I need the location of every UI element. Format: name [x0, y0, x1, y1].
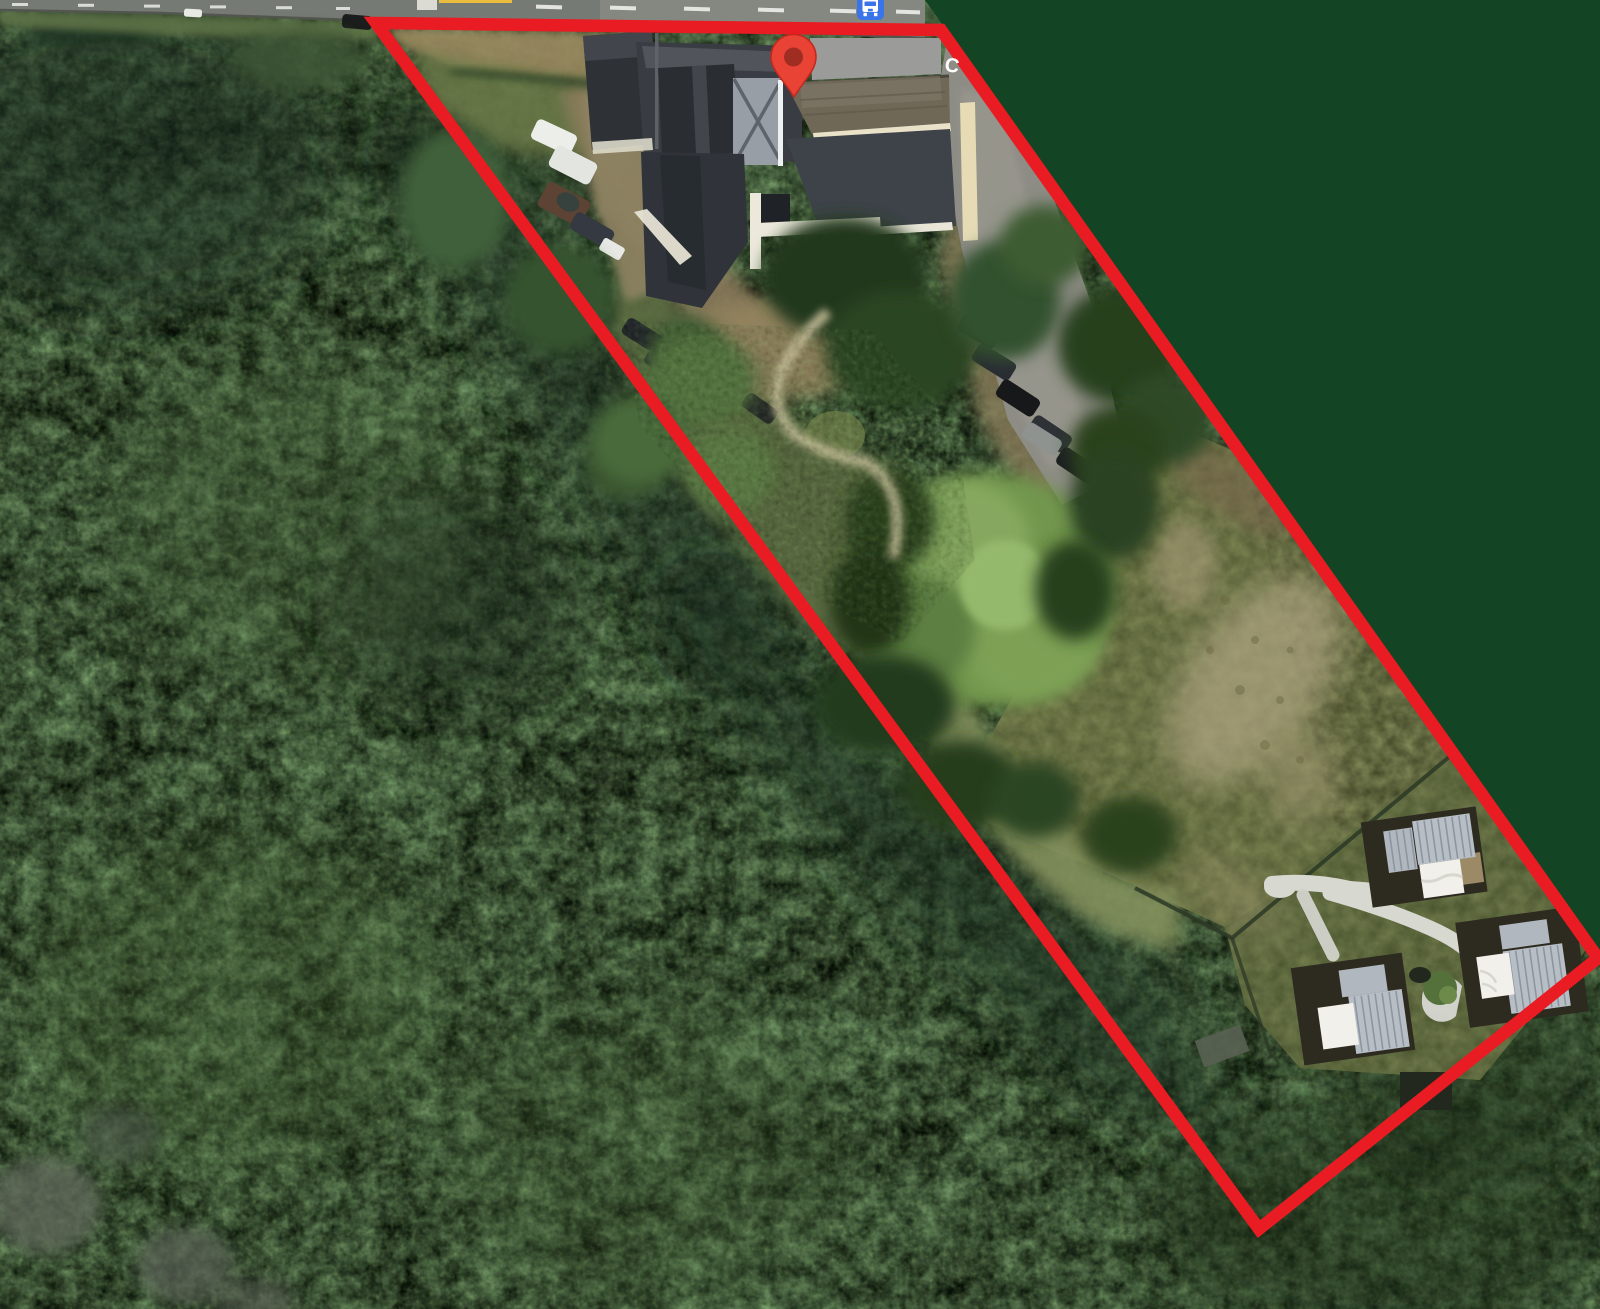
svg-text:C: C	[943, 54, 960, 78]
